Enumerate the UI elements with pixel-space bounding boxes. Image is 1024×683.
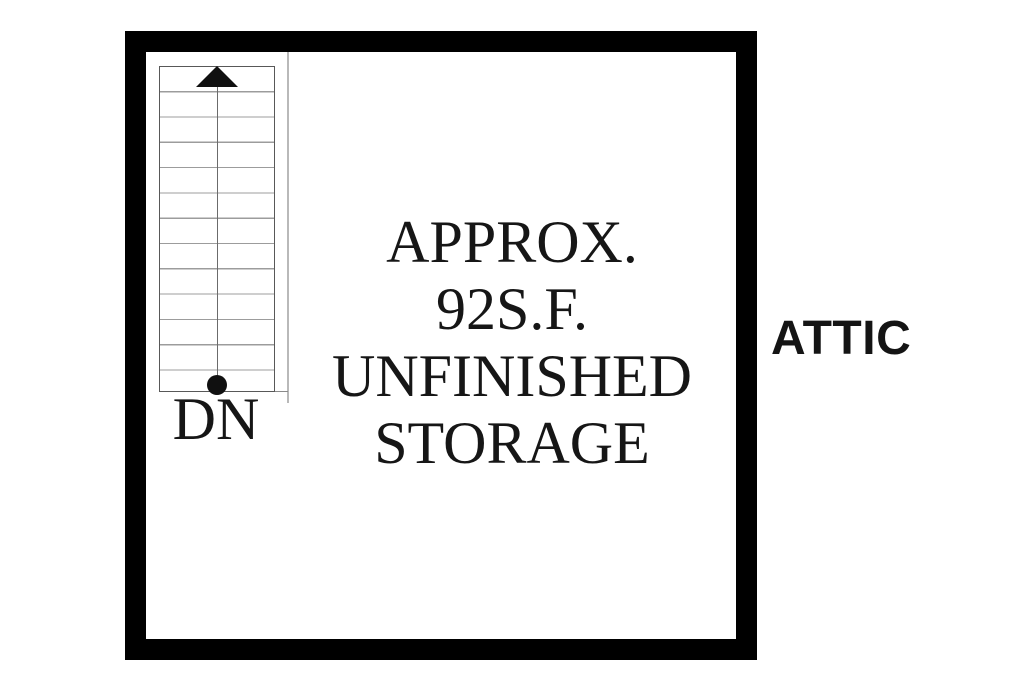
floor-plan-canvas: DN APPROX. 92S.F. UNFINISHED STORAGE ATT… [0, 0, 1024, 683]
area-annotation-line-3: UNFINISHED [332, 343, 692, 410]
up-arrow-icon [196, 66, 238, 87]
stair-direction-line [217, 84, 218, 380]
room-name-label: ATTIC [771, 315, 911, 363]
area-annotation-line-4: STORAGE [332, 410, 692, 477]
area-annotation: APPROX. 92S.F. UNFINISHED STORAGE [332, 209, 692, 477]
stair-bottom-wall-line [275, 391, 288, 392]
area-annotation-line-1: APPROX. [332, 209, 692, 276]
stair-partition-wall [287, 52, 289, 403]
area-annotation-line-2: 92S.F. [332, 276, 692, 343]
stair-down-label: DN [173, 386, 260, 453]
